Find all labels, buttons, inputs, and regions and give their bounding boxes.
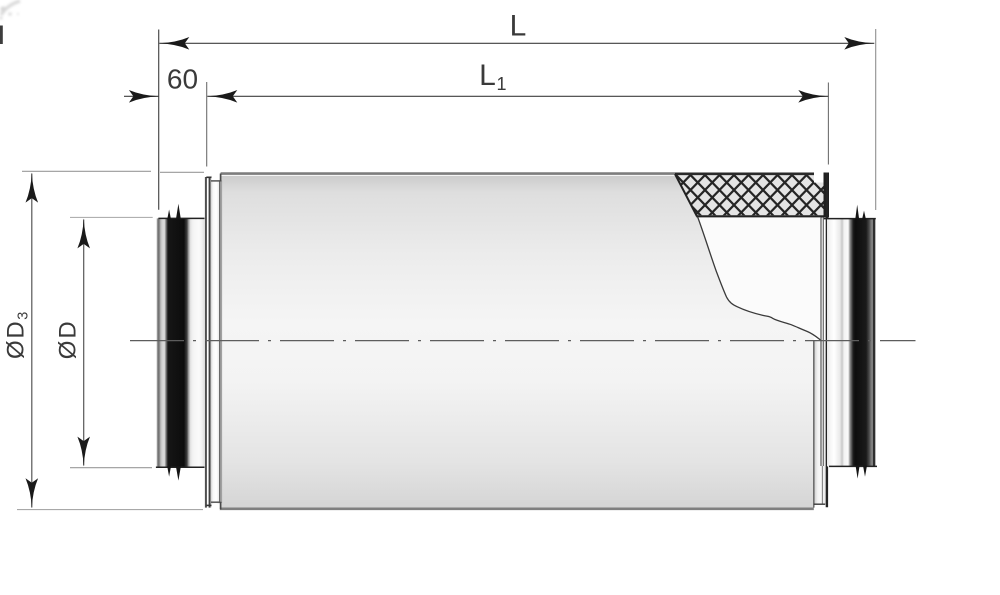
svg-text:1: 1	[497, 74, 507, 94]
svg-text:ØD: ØD	[55, 319, 82, 359]
svg-text:L: L	[479, 59, 496, 92]
svg-text:L: L	[510, 9, 527, 42]
svg-text:60: 60	[167, 63, 198, 94]
svg-text:ØD3: ØD3	[3, 310, 32, 359]
